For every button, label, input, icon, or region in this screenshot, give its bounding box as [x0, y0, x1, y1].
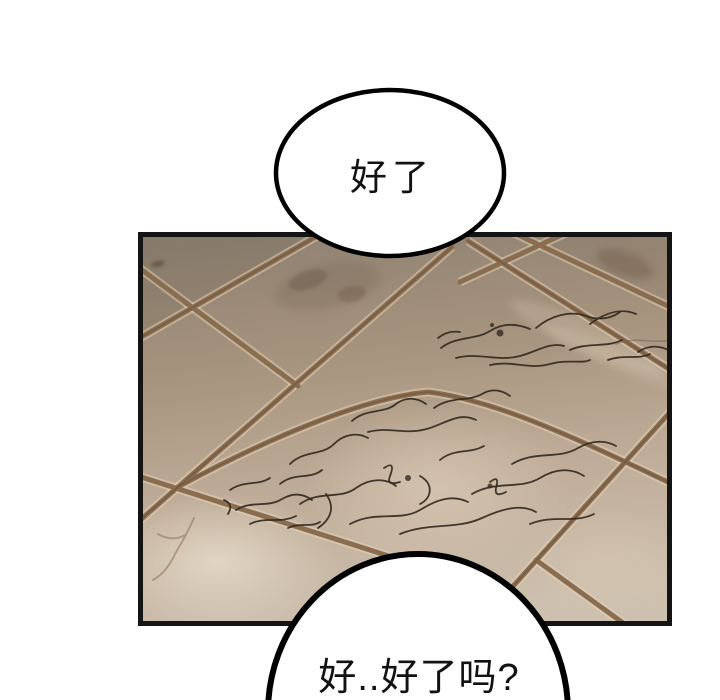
comic-panel-canvas: 好了 好..好了吗? [0, 0, 720, 700]
speech-bubble-top: 好了 [276, 90, 504, 256]
speech-bubble-bottom-text: 好..好了吗? [318, 657, 519, 699]
speech-bubble-top-text: 好了 [350, 157, 434, 198]
comic-page: 好了 好..好了吗? [0, 0, 720, 700]
